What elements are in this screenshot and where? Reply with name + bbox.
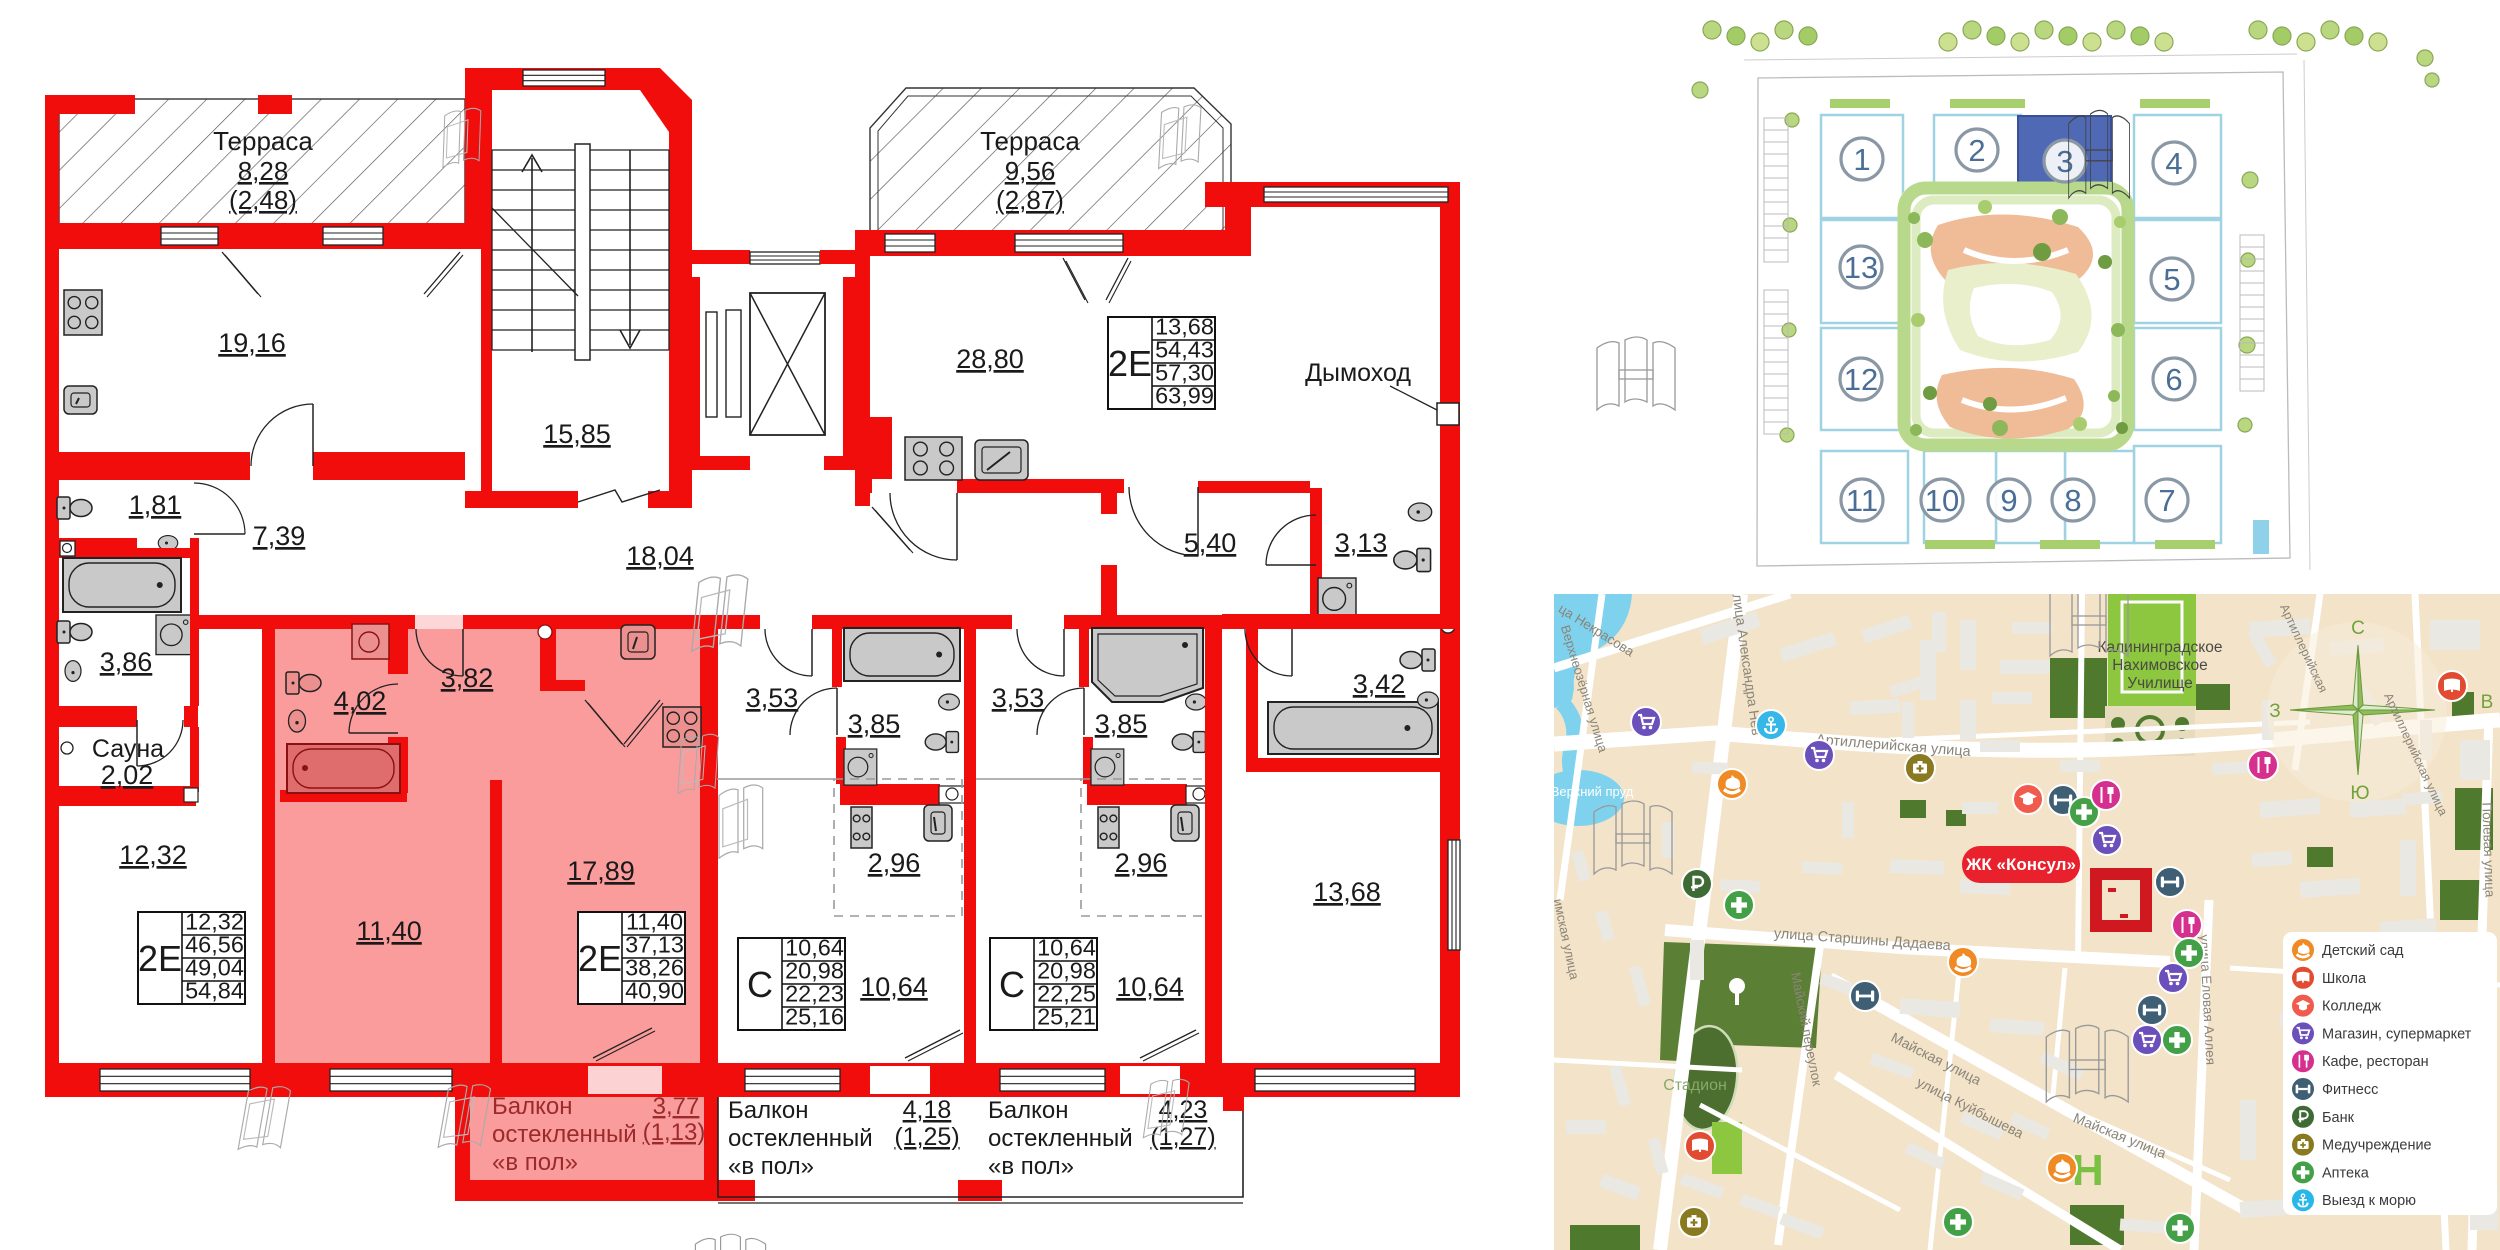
svg-text:2Е: 2Е xyxy=(138,938,182,979)
svg-text:19,16: 19,16 xyxy=(218,328,286,358)
svg-text:Аптека: Аптека xyxy=(2322,1165,2370,1181)
svg-text:63,99: 63,99 xyxy=(1155,383,1214,409)
svg-text:25,21: 25,21 xyxy=(1037,1004,1096,1030)
svg-text:«в пол»: «в пол» xyxy=(492,1149,578,1176)
svg-text:Балкон: Балкон xyxy=(492,1093,572,1120)
svg-text:Калининградское: Калининградское xyxy=(2097,639,2222,656)
svg-text:7: 7 xyxy=(2158,483,2175,518)
svg-text:17,89: 17,89 xyxy=(567,856,635,886)
svg-text:9,56: 9,56 xyxy=(1005,156,1056,186)
svg-text:«в пол»: «в пол» xyxy=(988,1153,1074,1180)
svg-text:С: С xyxy=(747,964,773,1005)
svg-text:3: 3 xyxy=(2056,144,2073,179)
svg-text:2,02: 2,02 xyxy=(101,760,154,790)
svg-text:Верхний пруд: Верхний пруд xyxy=(1554,784,1634,799)
svg-text:10: 10 xyxy=(1925,483,1959,518)
svg-text:10,64: 10,64 xyxy=(860,972,928,1002)
svg-text:Стадион: Стадион xyxy=(1663,1077,1727,1094)
svg-text:8,28: 8,28 xyxy=(238,156,289,186)
svg-text:остекленный: остекленный xyxy=(492,1121,637,1148)
svg-text:1,81: 1,81 xyxy=(129,490,182,520)
svg-text:12,32: 12,32 xyxy=(119,840,187,870)
svg-text:(2,48): (2,48) xyxy=(229,185,297,215)
svg-text:3,85: 3,85 xyxy=(848,709,901,739)
svg-text:10,64: 10,64 xyxy=(1116,972,1184,1002)
svg-text:2,96: 2,96 xyxy=(1115,848,1168,878)
svg-text:Ю: Ю xyxy=(2350,783,2369,804)
svg-text:З: З xyxy=(2269,701,2280,722)
svg-text:Терраса: Терраса xyxy=(980,126,1080,156)
svg-text:Выезд к морю: Выезд к морю xyxy=(2322,1193,2416,1209)
svg-text:«в пол»: «в пол» xyxy=(728,1153,814,1180)
svg-text:25,16: 25,16 xyxy=(785,1004,844,1030)
svg-text:Балкон: Балкон xyxy=(988,1097,1068,1124)
svg-text:3,53: 3,53 xyxy=(746,683,799,713)
svg-text:15,85: 15,85 xyxy=(543,419,611,449)
svg-text:3,42: 3,42 xyxy=(1353,669,1406,699)
svg-text:8: 8 xyxy=(2064,483,2081,518)
svg-text:5,40: 5,40 xyxy=(1184,528,1237,558)
svg-text:3,13: 3,13 xyxy=(1335,528,1388,558)
svg-text:4,18: 4,18 xyxy=(903,1096,952,1124)
svg-text:Школа: Школа xyxy=(2322,971,2367,987)
svg-text:3,82: 3,82 xyxy=(441,663,494,693)
svg-text:4,02: 4,02 xyxy=(334,686,387,716)
svg-text:Фитнесс: Фитнесс xyxy=(2322,1082,2378,1098)
svg-text:12: 12 xyxy=(1844,362,1878,397)
svg-text:2: 2 xyxy=(1968,133,1985,168)
svg-text:Медучреждение: Медучреждение xyxy=(2322,1138,2432,1154)
svg-text:ЖК «Консул»: ЖК «Консул» xyxy=(1965,855,2076,874)
svg-text:40,90: 40,90 xyxy=(625,978,684,1004)
svg-text:7,39: 7,39 xyxy=(253,521,306,551)
svg-text:11: 11 xyxy=(1846,483,1878,518)
svg-text:2Е: 2Е xyxy=(578,938,622,979)
svg-text:4: 4 xyxy=(2165,146,2182,181)
svg-text:Училище: Училище xyxy=(2127,675,2192,692)
svg-text:1: 1 xyxy=(1853,142,1870,177)
svg-text:3,77: 3,77 xyxy=(653,1093,700,1120)
svg-text:28,80: 28,80 xyxy=(956,344,1024,374)
svg-text:Сауна: Сауна xyxy=(92,735,164,763)
svg-text:остекленный: остекленный xyxy=(728,1125,873,1152)
svg-text:2,96: 2,96 xyxy=(868,848,921,878)
svg-text:5: 5 xyxy=(2163,262,2180,297)
svg-text:13,68: 13,68 xyxy=(1313,877,1381,907)
svg-text:Детский сад: Детский сад xyxy=(2322,943,2404,959)
svg-text:Нахимовское: Нахимовское xyxy=(2112,657,2208,674)
svg-text:остекленный: остекленный xyxy=(988,1125,1133,1152)
svg-text:3,85: 3,85 xyxy=(1095,709,1148,739)
svg-text:3,86: 3,86 xyxy=(100,647,153,677)
svg-text:(1,25): (1,25) xyxy=(894,1123,959,1151)
svg-text:13: 13 xyxy=(1844,250,1878,285)
svg-text:(1,13): (1,13) xyxy=(643,1119,706,1146)
svg-text:Магазин, супермаркет: Магазин, супермаркет xyxy=(2322,1026,2472,1042)
svg-text:3,53: 3,53 xyxy=(992,683,1045,713)
svg-text:Балкон: Балкон xyxy=(728,1097,808,1124)
svg-text:Колледж: Колледж xyxy=(2322,999,2381,1015)
svg-text:18,04: 18,04 xyxy=(626,541,694,571)
svg-text:Терраса: Терраса xyxy=(213,126,313,156)
svg-text:В: В xyxy=(2481,692,2494,713)
svg-text:Кафе, ресторан: Кафе, ресторан xyxy=(2322,1054,2429,1070)
svg-text:С: С xyxy=(2351,618,2365,639)
svg-text:С: С xyxy=(999,964,1025,1005)
svg-text:2Е: 2Е xyxy=(1108,343,1152,384)
svg-text:(2,87): (2,87) xyxy=(996,185,1064,215)
svg-text:Банк: Банк xyxy=(2322,1110,2355,1126)
svg-text:11,40: 11,40 xyxy=(356,916,422,946)
svg-text:6: 6 xyxy=(2165,362,2182,397)
svg-text:Дымоход: Дымоход xyxy=(1305,359,1411,387)
svg-text:54,84: 54,84 xyxy=(185,978,244,1004)
svg-text:9: 9 xyxy=(2000,483,2017,518)
svg-text:4,23: 4,23 xyxy=(1159,1096,1208,1124)
